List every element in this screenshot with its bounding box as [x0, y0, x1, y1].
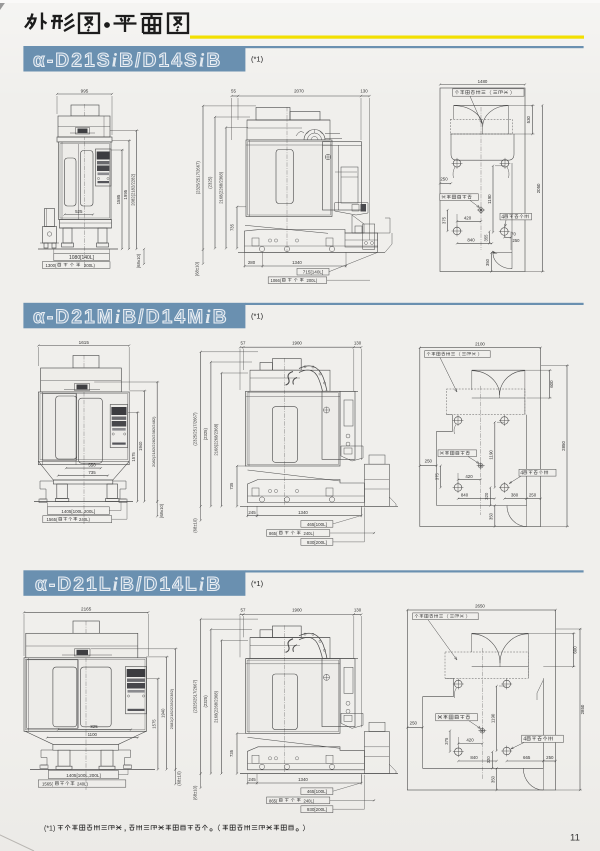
svg-text:2082(2182/2282): 2082(2182/2282): [130, 173, 135, 206]
svg-text:245: 245: [248, 777, 256, 782]
svg-text:130: 130: [354, 608, 362, 613]
svg-text:(2325/2517/2667): (2325/2517/2667): [193, 412, 198, 446]
svg-text:(*1): (*1): [251, 579, 264, 588]
svg-text:665: 665: [523, 755, 531, 760]
svg-text:840: 840: [470, 755, 478, 760]
svg-text:995: 995: [81, 88, 89, 93]
svg-text:1575: 1575: [152, 719, 157, 729]
svg-text:1340: 1340: [298, 777, 308, 782]
svg-text:1405[100L,200L]: 1405[100L,200L]: [66, 773, 101, 778]
svg-text:420: 420: [465, 474, 473, 479]
svg-text:2168(2268/2368): 2168(2268/2368): [213, 423, 218, 456]
svg-text:375: 375: [435, 472, 440, 480]
svg-text:1940: 1940: [138, 441, 143, 451]
svg-text:1900: 1900: [292, 340, 302, 345]
svg-text:840: 840: [461, 493, 469, 498]
svg-text:375: 375: [441, 216, 446, 224]
svg-text:2082(2182/2282/2382): 2082(2182/2282/2382): [169, 688, 174, 729]
svg-text:2650: 2650: [475, 604, 485, 609]
svg-text:(2325): (2325): [208, 176, 213, 189]
svg-text:2050: 2050: [536, 183, 541, 193]
svg-text:1340: 1340: [292, 260, 302, 265]
svg-text:250: 250: [529, 493, 537, 498]
svg-text:1565(: 1565(: [42, 782, 54, 787]
svg-text:420: 420: [464, 215, 472, 220]
svg-text:735: 735: [229, 482, 234, 490]
svg-text:735: 735: [230, 223, 235, 231]
svg-text:865(: 865(: [269, 798, 278, 803]
svg-text:350: 350: [489, 512, 494, 520]
svg-text:465[100L]: 465[100L]: [307, 789, 327, 794]
svg-text:2165: 2165: [81, 607, 92, 612]
svg-text:2168(2268/2368): 2168(2268/2368): [219, 171, 224, 204]
svg-text:1190: 1190: [489, 450, 494, 460]
svg-text:200L): 200L): [307, 278, 318, 283]
svg-text:57: 57: [241, 340, 246, 345]
svg-text:(2325): (2325): [203, 695, 208, 708]
svg-text:1585: 1585: [116, 194, 121, 204]
svg-text:1190: 1190: [491, 713, 496, 723]
svg-text:(*1): (*1): [251, 55, 264, 64]
svg-text:(*1): (*1): [44, 826, 55, 833]
svg-text:1480: 1480: [478, 79, 488, 84]
svg-text:240L): 240L): [304, 798, 315, 803]
svg-text:1066(: 1066(: [271, 278, 282, 283]
svg-text:420: 420: [466, 738, 474, 743]
svg-text:250: 250: [513, 238, 521, 243]
svg-text:2850: 2850: [580, 704, 585, 714]
svg-text:530: 530: [526, 115, 531, 123]
svg-text:825: 825: [90, 724, 98, 729]
svg-text:465[100L]: 465[100L]: [307, 522, 327, 527]
svg-text:1615: 1615: [79, 340, 90, 345]
svg-text:355: 355: [483, 234, 488, 242]
svg-text:2168(2268/2368): 2168(2268/2368): [213, 690, 218, 723]
svg-text:200L): 200L): [84, 263, 96, 268]
svg-text:600: 600: [549, 380, 554, 388]
svg-text:550: 550: [88, 462, 96, 467]
svg-text:1995: 1995: [123, 189, 128, 199]
svg-text:1100: 1100: [88, 732, 98, 737]
svg-text:240L): 240L): [79, 517, 91, 522]
svg-text:2100: 2100: [475, 341, 485, 346]
svg-text:(68±10): (68±10): [195, 261, 200, 276]
svg-text:1900: 1900: [292, 608, 302, 613]
svg-text:(68±10): (68±10): [136, 253, 141, 268]
svg-text:(2325/2517/2667): (2325/2517/2667): [196, 161, 201, 195]
svg-text:1565(: 1565(: [47, 517, 59, 522]
svg-text:(68±10): (68±10): [177, 771, 182, 786]
svg-text:930[200L]: 930[200L]: [307, 540, 327, 545]
svg-text:320: 320: [486, 756, 491, 764]
svg-text:1340: 1340: [298, 510, 308, 515]
svg-text:(*1): (*1): [251, 311, 264, 320]
svg-text:250: 250: [425, 459, 433, 464]
svg-text:245: 245: [248, 510, 256, 515]
svg-text:11: 11: [570, 833, 580, 844]
svg-text:(68±10): (68±10): [192, 518, 197, 533]
svg-text:525: 525: [75, 209, 83, 214]
svg-text:930[200L]: 930[200L]: [307, 807, 327, 812]
svg-text:350: 350: [485, 258, 490, 266]
svg-text:1940: 1940: [160, 708, 165, 718]
svg-text:α-D21MiB/D14MiB: α-D21MiB/D14MiB: [33, 307, 229, 328]
svg-text:280: 280: [248, 260, 256, 265]
svg-text:α-D21SiB/D14SiB: α-D21SiB/D14SiB: [33, 50, 222, 71]
svg-text:(2325/2517/2667): (2325/2517/2667): [193, 679, 198, 713]
svg-text:(68±10): (68±10): [192, 785, 197, 800]
svg-text:250: 250: [410, 721, 418, 726]
svg-text:240L): 240L): [304, 531, 315, 536]
svg-text:130: 130: [360, 89, 368, 94]
svg-text:1405[100L,200L]: 1405[100L,200L]: [61, 509, 95, 514]
svg-text:380: 380: [511, 493, 519, 498]
svg-text:1300(: 1300(: [46, 263, 58, 268]
svg-text:250: 250: [440, 176, 448, 181]
svg-text:735: 735: [229, 749, 234, 757]
svg-text:240L): 240L): [77, 782, 89, 787]
svg-text:715[140L]: 715[140L]: [303, 270, 323, 275]
svg-text:840: 840: [467, 237, 475, 242]
svg-text:375: 375: [444, 737, 449, 745]
svg-text:1190: 1190: [487, 194, 492, 204]
svg-text:2850: 2850: [561, 441, 566, 451]
svg-text:57: 57: [241, 608, 246, 613]
svg-text:2070: 2070: [294, 89, 304, 94]
svg-text:α-D21LiB/D14LiB: α-D21LiB/D14LiB: [35, 575, 222, 596]
svg-text:55: 55: [231, 89, 236, 94]
svg-text:350: 350: [490, 775, 495, 783]
svg-text:2082(2182/2282/2382/2482): 2082(2182/2282/2382/2482): [151, 416, 156, 467]
svg-text:(2325): (2325): [203, 427, 208, 440]
svg-text:250: 250: [546, 755, 554, 760]
svg-text:130: 130: [354, 340, 362, 345]
svg-text:600: 600: [573, 646, 578, 654]
svg-text:865(: 865(: [269, 531, 278, 536]
svg-text:1080[140L]: 1080[140L]: [69, 255, 95, 261]
svg-text:4: 4: [520, 470, 523, 476]
svg-text:1575: 1575: [131, 452, 136, 462]
svg-text:735: 735: [88, 470, 96, 475]
svg-text:4: 4: [501, 214, 504, 220]
svg-text:(68±10): (68±10): [159, 503, 164, 518]
